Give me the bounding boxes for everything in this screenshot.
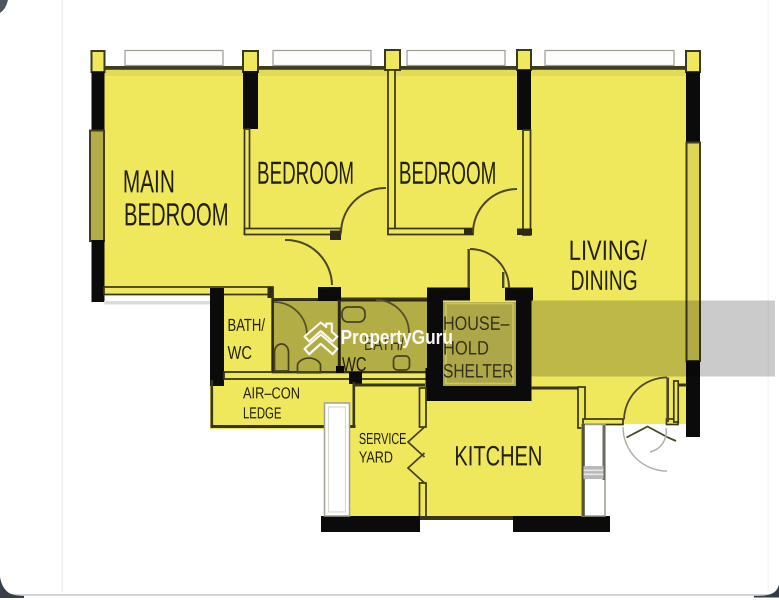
svg-text:DINING: DINING xyxy=(571,265,638,296)
svg-text:BEDROOM: BEDROOM xyxy=(399,155,497,191)
svg-text:PropertyGuru: PropertyGuru xyxy=(341,326,454,349)
svg-text:SERVICE: SERVICE xyxy=(359,431,407,448)
svg-text:BEDROOM: BEDROOM xyxy=(257,155,354,191)
svg-text:LEDGE: LEDGE xyxy=(243,405,282,422)
svg-text:BEDROOM: BEDROOM xyxy=(124,196,229,232)
svg-text:WC: WC xyxy=(342,354,367,376)
svg-text:AIR–CON: AIR–CON xyxy=(243,385,300,402)
svg-text:SHELTER: SHELTER xyxy=(443,361,514,383)
svg-text:KITCHEN: KITCHEN xyxy=(454,440,542,471)
svg-text:MAIN: MAIN xyxy=(123,163,175,199)
svg-text:LIVING/: LIVING/ xyxy=(569,235,647,266)
svg-text:WC: WC xyxy=(227,342,252,363)
svg-text:BATH/: BATH/ xyxy=(227,315,265,335)
svg-text:YARD: YARD xyxy=(359,449,393,466)
